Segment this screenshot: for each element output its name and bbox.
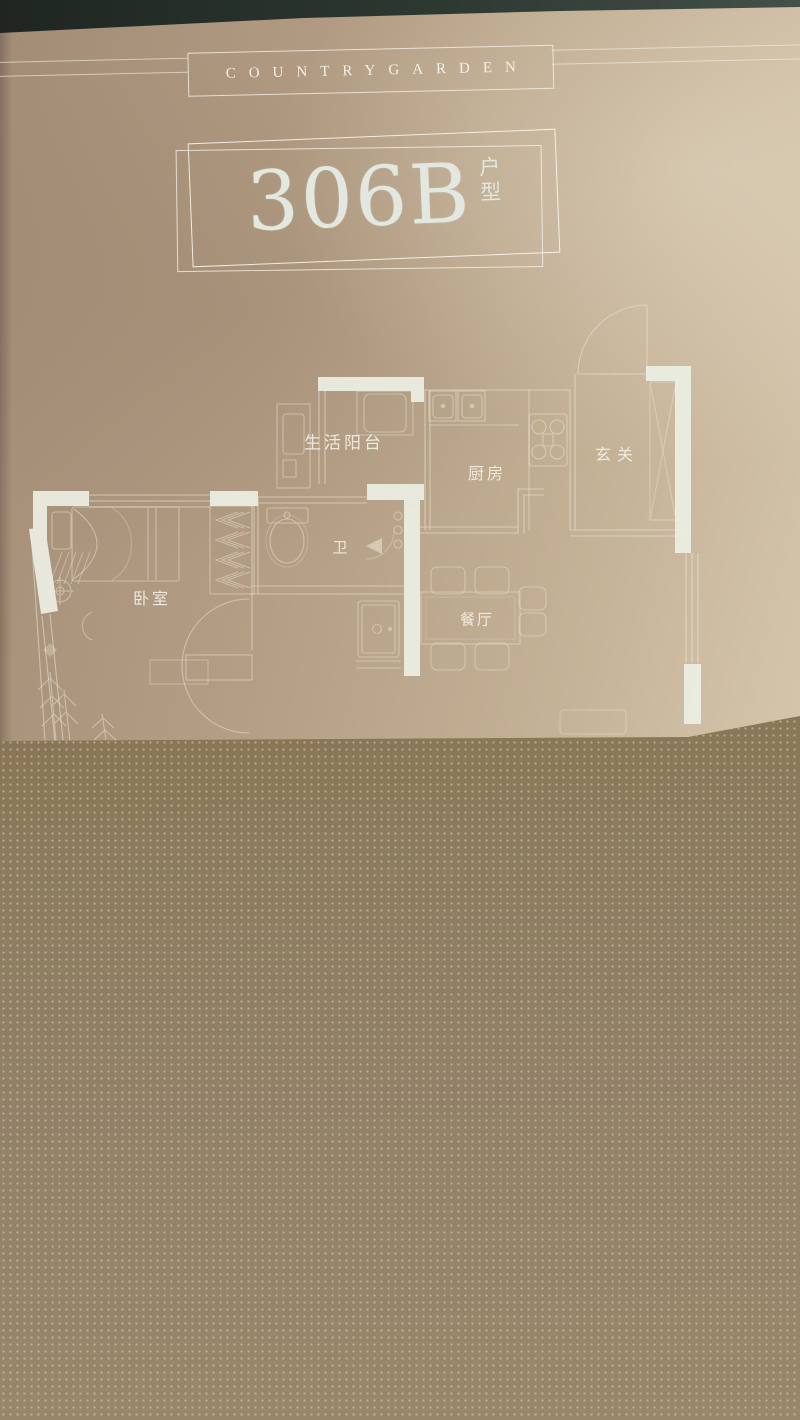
frame-line <box>551 44 800 51</box>
room-label-balcony: 生活阳台 <box>304 429 384 454</box>
unit-suffix-char-top: 户 <box>479 155 501 181</box>
brand-plate: COUNTRYGARDEN <box>187 45 554 97</box>
title-plate: 306B 户 型 <box>188 129 561 268</box>
room-label-kitchen: 厨房 <box>468 460 506 484</box>
room-label-bath: 卫 <box>332 537 347 558</box>
unit-number: 306B <box>245 153 473 244</box>
unit-type-suffix: 户 型 <box>479 155 502 206</box>
room-label-dining: 餐厅 <box>460 609 494 630</box>
room-label-bedroom: 卧室 <box>133 585 171 609</box>
photo-of-floorplan-board: COUNTRYGARDEN 306B 户 型 <box>0 0 800 1420</box>
brand-text: COUNTRYGARDEN <box>213 59 529 83</box>
frame-line <box>0 72 188 78</box>
room-label-entry: 玄关 <box>595 441 639 465</box>
title-text: 306B 户 型 <box>188 129 561 268</box>
dark-shadow-region <box>0 690 800 1420</box>
unit-suffix-char-bottom: 型 <box>480 180 502 206</box>
frame-line <box>0 58 188 64</box>
frame-line <box>552 58 800 65</box>
